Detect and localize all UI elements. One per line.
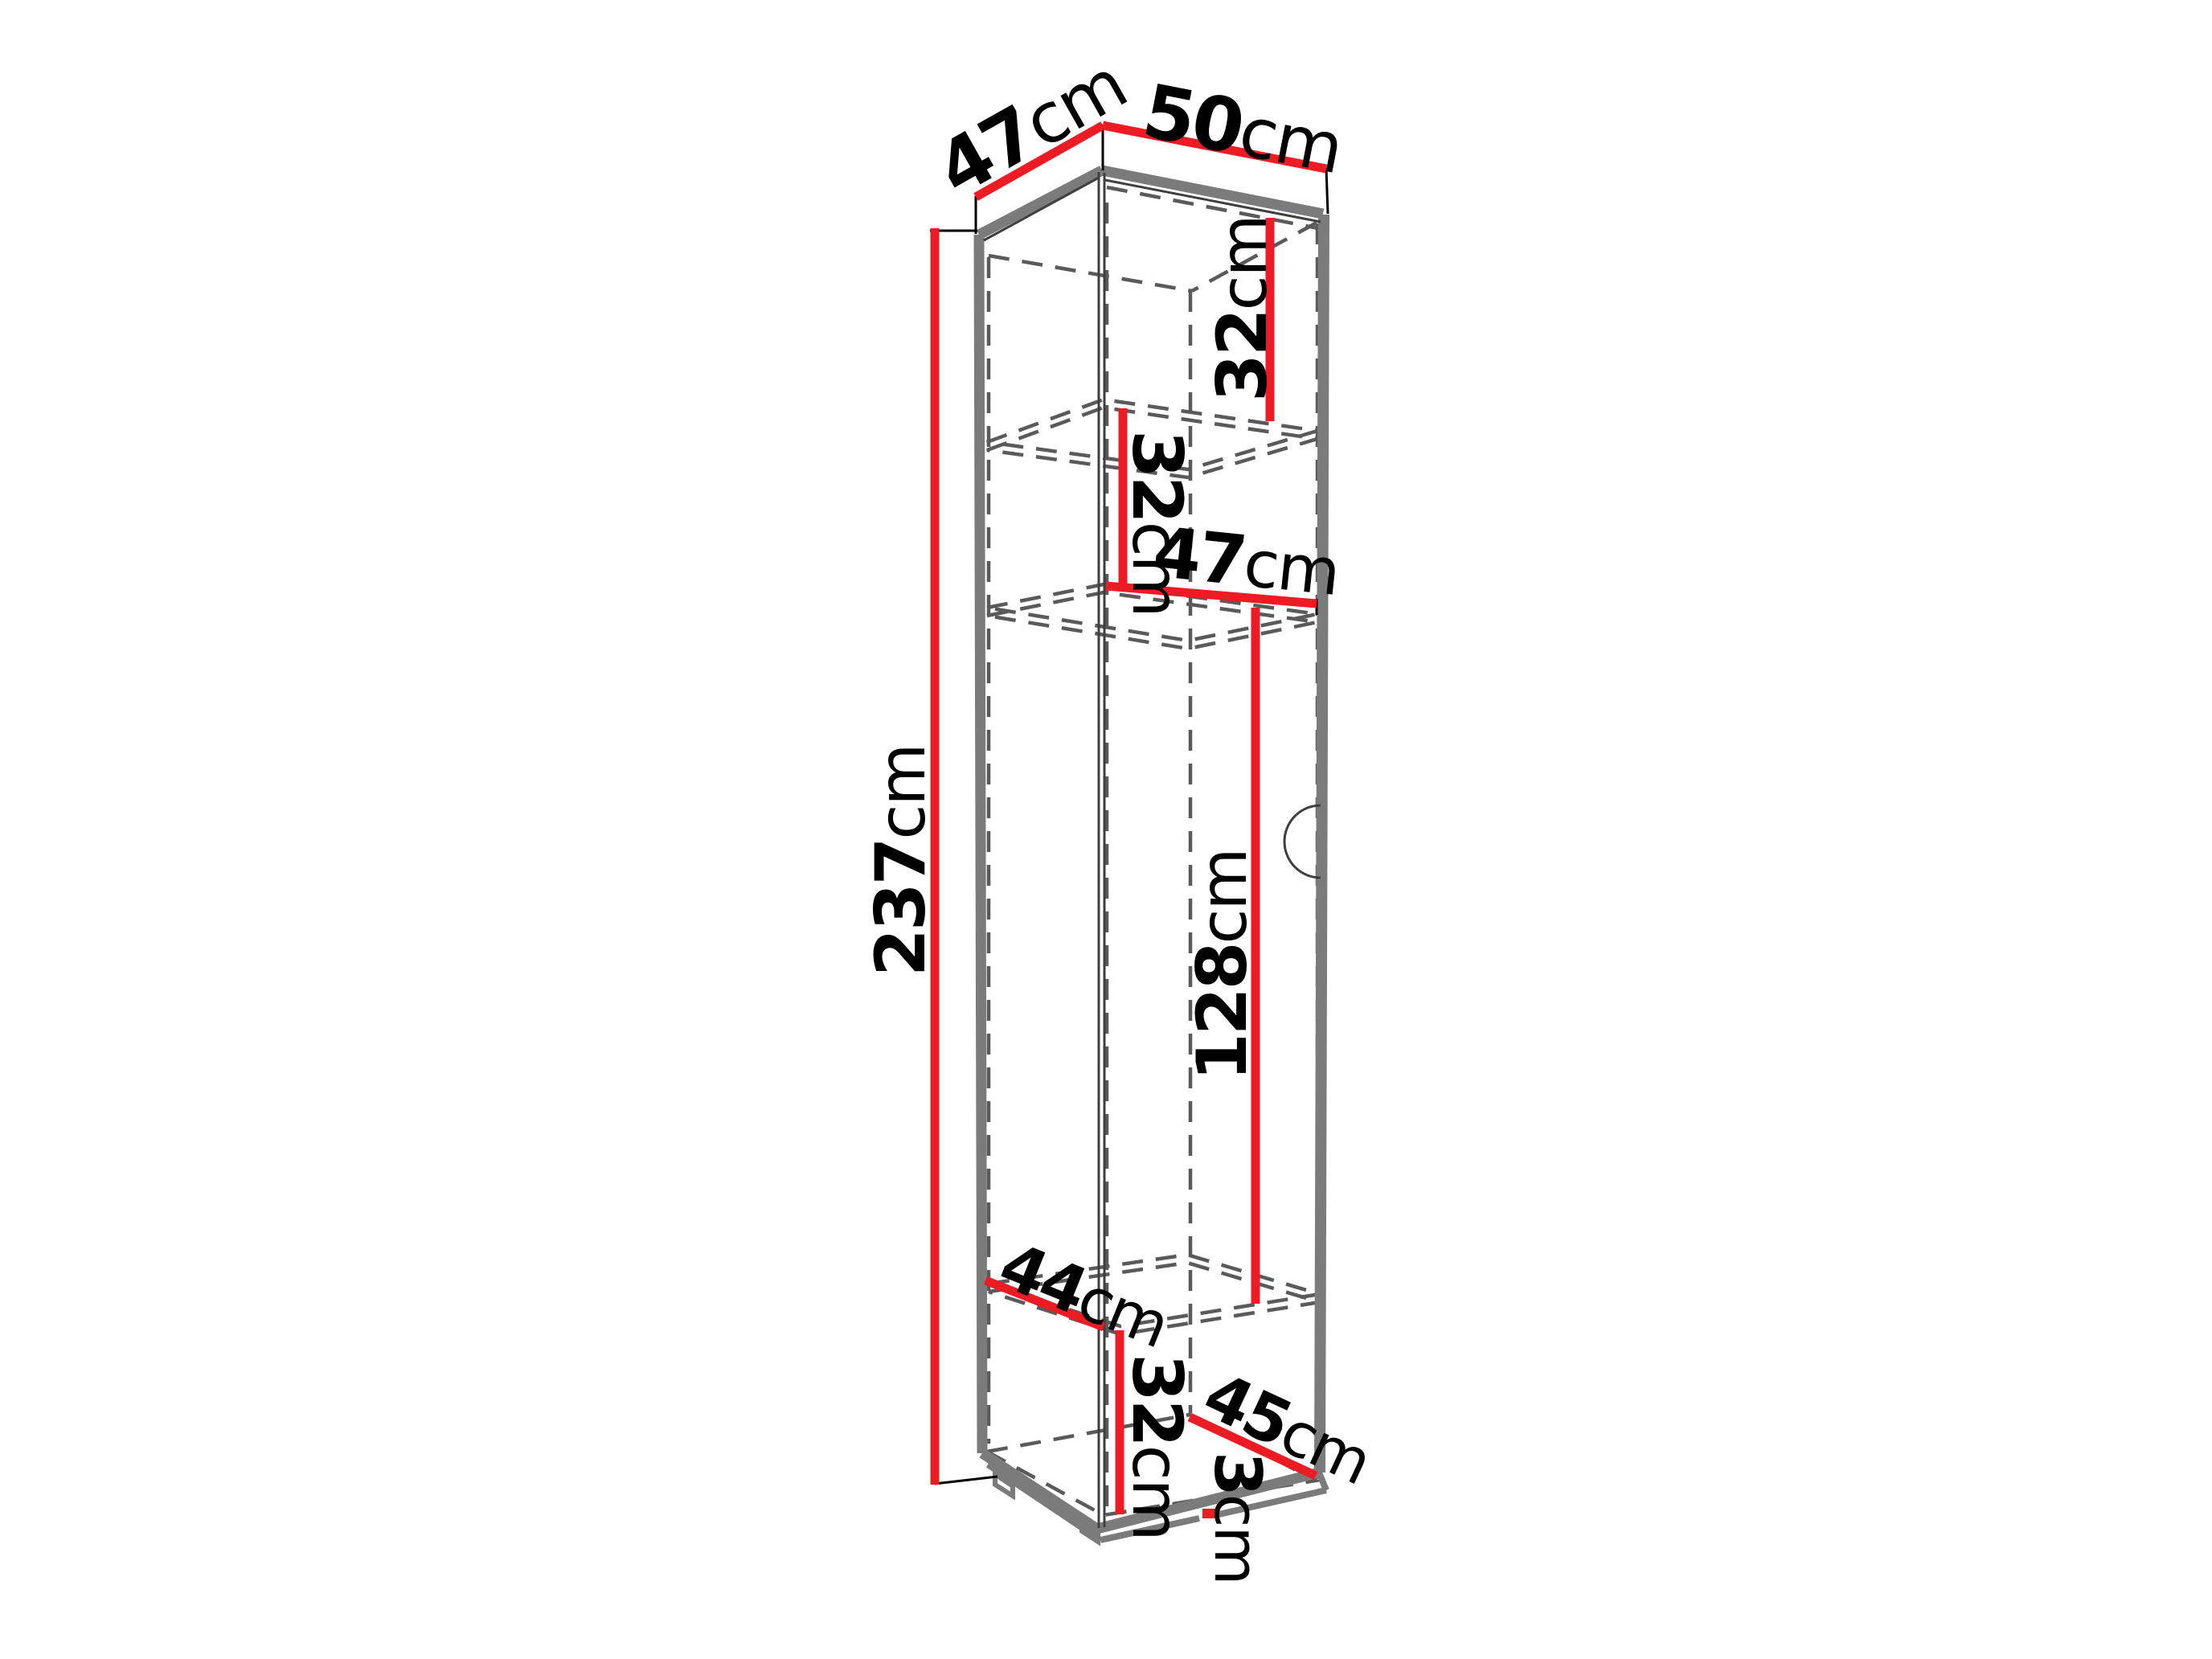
label-bottom-depth: 44cm [989, 1227, 1179, 1362]
left-back-edge [979, 235, 982, 1453]
top-back-edge [989, 256, 1192, 291]
label-bottom-shelf: 32cm [1116, 1354, 1197, 1540]
label-middle-section: 128cm [1182, 850, 1263, 1081]
label-plinth-height: 3cm [1200, 1452, 1275, 1584]
label-upper-shelf: 32cm [1202, 215, 1283, 402]
label-top-width: 50cm [1137, 68, 1350, 191]
cabinet-dimension-diagram: 47cm 50cm 32cm 32cm 47cm 237cm 128cm 44c… [0, 0, 2212, 1659]
diagram-stage: 47cm 50cm 32cm 32cm 47cm 237cm 128cm 44c… [0, 0, 2212, 1659]
door-handle-recess [1284, 805, 1321, 878]
front-right-edge [1320, 215, 1324, 1473]
front-top-inner-line [1105, 180, 1321, 222]
tick-height-bottom [935, 1477, 997, 1484]
label-height: 237cm [861, 745, 941, 977]
